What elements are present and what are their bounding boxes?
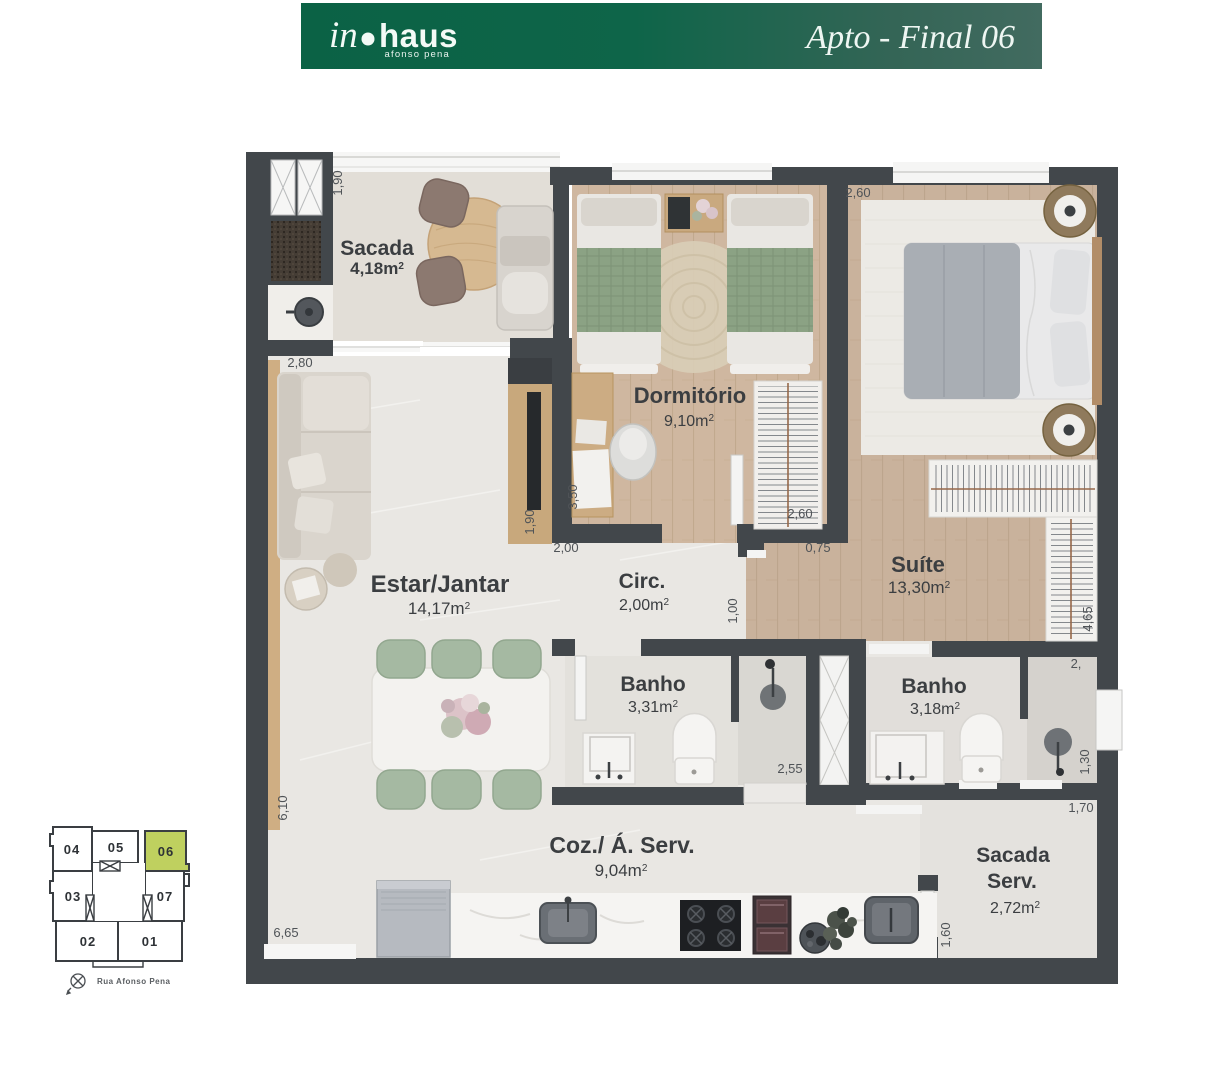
svg-text:2,55: 2,55 [777,761,802,776]
svg-text:2,: 2, [1071,656,1082,671]
svg-text:3,31m2: 3,31m2 [628,699,678,716]
svg-text:9,10m2: 9,10m2 [664,413,714,430]
svg-text:3,18m2: 3,18m2 [910,701,960,718]
svg-text:1,90: 1,90 [522,509,537,534]
svg-text:Dormitório: Dormitório [634,383,746,408]
svg-text:1,30: 1,30 [1077,749,1092,774]
svg-text:03: 03 [65,889,81,904]
svg-text:Sacada: Sacada [976,844,1050,867]
svg-text:2,00: 2,00 [553,540,578,555]
svg-text:Rua Afonso Pena: Rua Afonso Pena [97,977,170,986]
svg-text:6,10: 6,10 [275,795,290,820]
svg-text:01: 01 [142,934,158,949]
svg-text:0,75: 0,75 [805,540,830,555]
svg-text:in: in [329,15,358,56]
svg-text:Serv.: Serv. [987,870,1037,893]
svg-text:13,30m2: 13,30m2 [888,578,951,597]
svg-text:Circ.: Circ. [619,570,666,593]
svg-text:9,04m2: 9,04m2 [595,861,648,880]
svg-text:6,65: 6,65 [273,925,298,940]
svg-text:3,50: 3,50 [565,484,580,509]
svg-text:2,60: 2,60 [845,185,870,200]
svg-text:Banho: Banho [620,673,685,696]
svg-text:2,00m2: 2,00m2 [619,597,669,614]
svg-text:afonso pena: afonso pena [385,49,451,60]
svg-text:05: 05 [108,840,124,855]
svg-text:2,80: 2,80 [287,355,312,370]
svg-text:07: 07 [157,889,173,904]
svg-text:04: 04 [64,842,80,857]
svg-text:Suíte: Suíte [891,552,945,577]
svg-text:1,70: 1,70 [1068,800,1093,815]
svg-text:1,00: 1,00 [725,598,740,623]
svg-text:1,60: 1,60 [938,922,953,947]
svg-text:4,65: 4,65 [1080,606,1095,631]
svg-text:2,72m2: 2,72m2 [990,900,1040,917]
svg-text:02: 02 [80,934,96,949]
svg-text:4,18m2: 4,18m2 [350,259,404,278]
svg-text:14,17m2: 14,17m2 [408,599,471,618]
svg-text:06: 06 [158,844,174,859]
svg-text:2,60: 2,60 [787,506,812,521]
svg-text:Sacada: Sacada [340,237,414,260]
svg-text:Apto - Final 06: Apto - Final 06 [804,19,1015,56]
svg-text:Banho: Banho [901,675,966,698]
svg-text:Estar/Jantar: Estar/Jantar [371,571,510,598]
svg-text:1,90: 1,90 [330,170,345,195]
svg-text:Coz./ Á. Serv.: Coz./ Á. Serv. [549,831,694,858]
